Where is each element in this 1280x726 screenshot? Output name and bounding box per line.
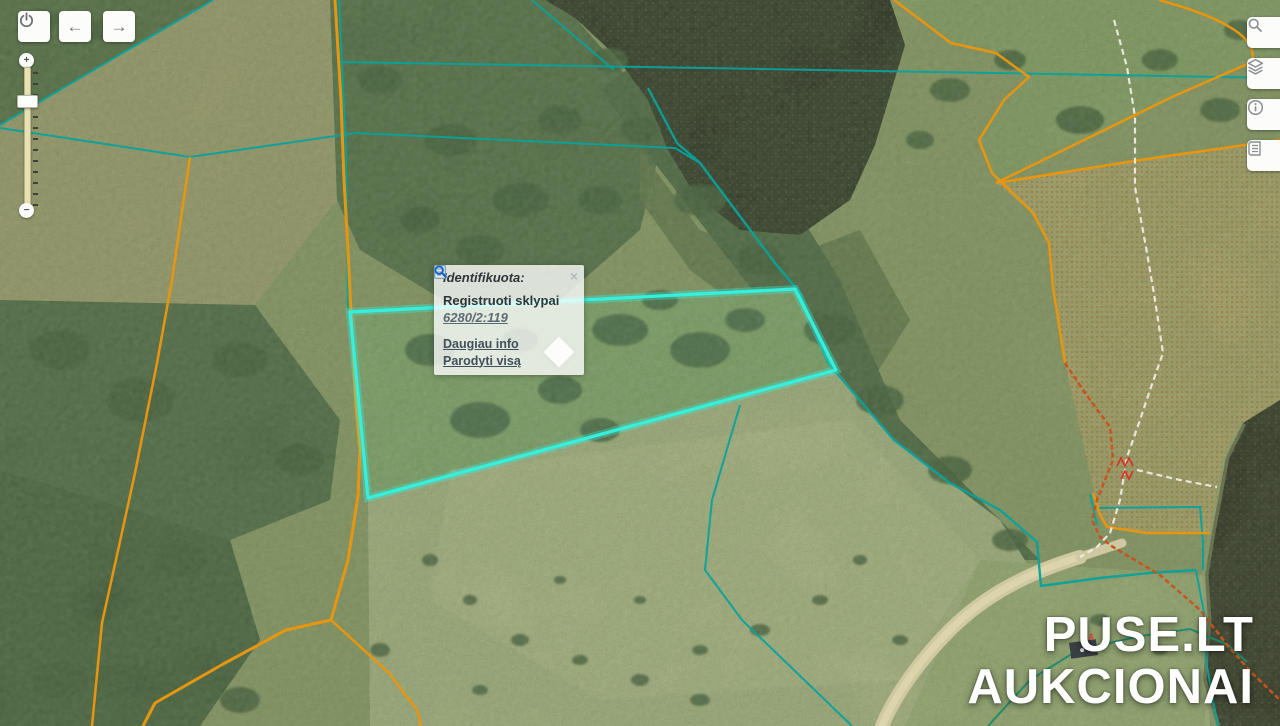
show-full-link[interactable]: Parodyti visą bbox=[443, 354, 521, 368]
search-tool-button[interactable] bbox=[1247, 17, 1280, 48]
power-button[interactable] bbox=[18, 11, 50, 42]
layer-name: Registruoti sklypai bbox=[443, 293, 575, 308]
info-tool-button[interactable] bbox=[1247, 99, 1280, 130]
map-viewer: 3A ← → + − bbox=[0, 0, 1280, 726]
legend-list-icon bbox=[1247, 140, 1263, 157]
zoom-ticks bbox=[33, 72, 38, 208]
power-icon bbox=[18, 11, 35, 28]
more-info-link[interactable]: Daugiau info bbox=[443, 337, 519, 351]
back-arrow-icon: ← bbox=[67, 17, 84, 37]
back-button[interactable]: ← bbox=[59, 11, 91, 42]
magnifier-icon bbox=[434, 265, 447, 278]
close-icon[interactable]: × bbox=[570, 270, 578, 282]
info-icon bbox=[1247, 99, 1264, 116]
zoom-in-button[interactable]: + bbox=[19, 53, 34, 68]
layers-icon bbox=[1247, 58, 1264, 75]
watermark: PUSE.LT AUKCIONAI bbox=[967, 610, 1254, 714]
forward-button[interactable]: → bbox=[103, 11, 135, 42]
zoom-slider: + − bbox=[15, 53, 41, 225]
legend-tool-button[interactable] bbox=[1247, 140, 1280, 171]
popup-title: Identifikuota: bbox=[443, 270, 525, 285]
zoom-handle[interactable] bbox=[17, 95, 38, 108]
parcel-id-link[interactable]: 6280/2:119 bbox=[443, 310, 508, 325]
watermark-line1: PUSE.LT bbox=[967, 610, 1254, 662]
search-icon bbox=[1247, 17, 1263, 33]
watermark-line2: AUKCIONAI bbox=[967, 662, 1254, 714]
forward-arrow-icon: → bbox=[111, 17, 128, 37]
layers-tool-button[interactable] bbox=[1247, 58, 1280, 89]
identify-popup: Identifikuota: × Registruoti sklypai 628… bbox=[434, 265, 584, 375]
zoom-track[interactable] bbox=[24, 67, 31, 215]
zoom-out-button[interactable]: − bbox=[19, 203, 34, 218]
